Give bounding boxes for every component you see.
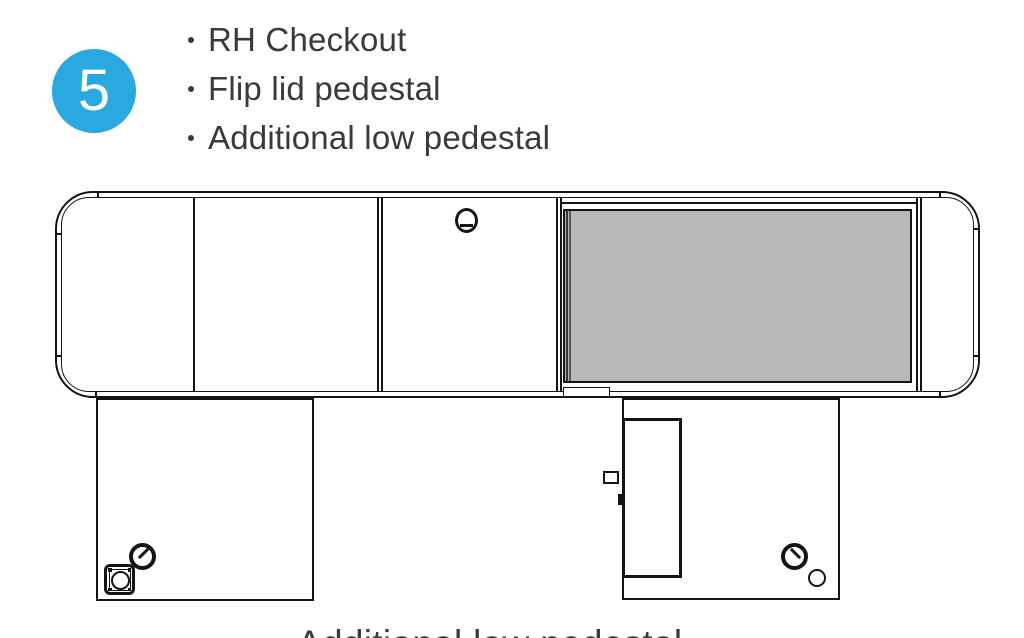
feature-bullet-list: RH Checkout Flip lid pedestal Additional… bbox=[188, 15, 550, 162]
door-latch bbox=[603, 471, 619, 484]
bullet-dot-icon bbox=[188, 37, 194, 43]
pedestal-door bbox=[622, 418, 682, 578]
section-divider bbox=[916, 197, 918, 392]
belt-edge-hatch bbox=[569, 211, 571, 381]
section-divider bbox=[920, 197, 922, 392]
joint-tick bbox=[973, 228, 980, 230]
bullet-item: RH Checkout bbox=[188, 15, 550, 64]
joint-tick bbox=[95, 391, 97, 398]
joint-tick bbox=[55, 355, 62, 357]
belt-frame-line bbox=[560, 202, 917, 204]
joint-tick bbox=[55, 233, 62, 235]
section-divider bbox=[193, 197, 195, 392]
step-number-badge: 5 bbox=[52, 49, 136, 133]
bullet-item: Flip lid pedestal bbox=[188, 64, 550, 113]
diagram-caption: Additional low pedestal bbox=[297, 623, 682, 638]
bullet-label: Additional low pedestal bbox=[208, 119, 550, 157]
section-divider bbox=[560, 197, 562, 392]
section-divider bbox=[377, 197, 379, 392]
step-number: 5 bbox=[78, 62, 110, 120]
outlet-screw bbox=[128, 588, 132, 592]
grommet-icon bbox=[781, 543, 808, 570]
belt-area bbox=[563, 209, 912, 383]
power-outlet-icon bbox=[104, 564, 135, 595]
door-hinge-mark bbox=[618, 494, 622, 505]
grommet-icon bbox=[455, 208, 478, 233]
outlet-screw bbox=[108, 588, 112, 592]
bullet-dot-icon bbox=[188, 135, 194, 141]
slide-page: 5 RH Checkout Flip lid pedestal Addition… bbox=[0, 0, 1024, 638]
section-divider bbox=[381, 197, 383, 392]
outlet-screw bbox=[108, 568, 112, 572]
joint-tick bbox=[97, 191, 99, 198]
outlet-screw bbox=[128, 568, 132, 572]
belt-edge-hatch bbox=[566, 211, 568, 381]
belt-corner-box bbox=[563, 387, 610, 397]
bullet-item: Additional low pedestal bbox=[188, 113, 550, 162]
bullet-dot-icon bbox=[188, 86, 194, 92]
joint-tick bbox=[939, 391, 941, 398]
grommet-chord bbox=[460, 224, 473, 227]
section-divider bbox=[556, 197, 558, 392]
joint-tick bbox=[939, 191, 941, 198]
joint-tick bbox=[973, 355, 980, 357]
small-hole-icon bbox=[808, 569, 826, 587]
bullet-label: Flip lid pedestal bbox=[208, 70, 441, 108]
outlet-socket bbox=[111, 571, 130, 590]
bullet-label: RH Checkout bbox=[208, 21, 406, 59]
